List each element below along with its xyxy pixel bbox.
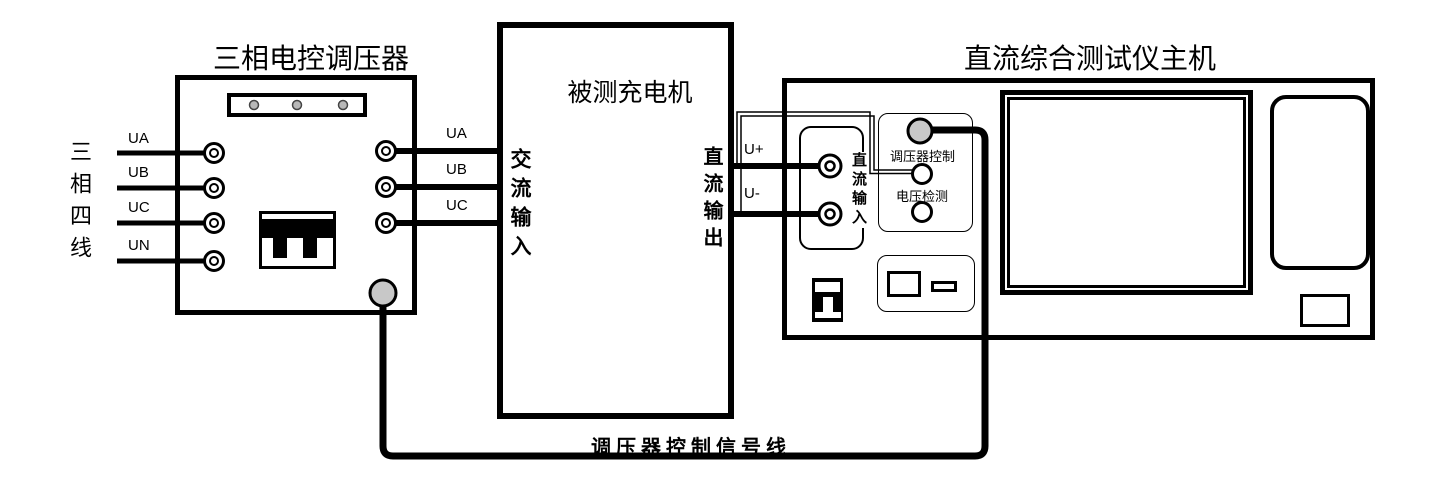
charger-title: 被测充电机 (530, 73, 730, 109)
tester-button-panel (877, 255, 975, 312)
breaker-toggle-right (303, 238, 317, 258)
tester-side-panel (1270, 95, 1370, 270)
wire-label-ub-out: UB (446, 161, 467, 178)
square-button (887, 271, 921, 297)
tester-small-button (1300, 294, 1350, 327)
wire-label-ub-in: UB (128, 164, 149, 181)
ac-input-label: 交流输入 (505, 148, 535, 264)
regulator-control-label: 调压器控制 (890, 146, 955, 165)
tester-screen-inner (1007, 97, 1246, 288)
tester-screen (1000, 90, 1253, 295)
small-indicator (931, 281, 957, 292)
wire-label-uc-out: UC (446, 197, 468, 214)
control-signal-label: 调压器控制信号线 (586, 431, 796, 460)
wire-label-un-in: UN (128, 237, 150, 254)
regulator-title: 三相电控调压器 (171, 37, 451, 77)
wire-label-ua-out: UA (446, 125, 467, 142)
breaker-icon (259, 211, 336, 269)
u-minus-label: U- (744, 185, 760, 202)
wire-label-ua-in: UA (128, 130, 149, 147)
wire-label-uc-in: UC (128, 199, 150, 216)
breaker-band (262, 219, 333, 238)
voltage-detect-label: 电压检测 (896, 186, 948, 205)
breaker-toggle-left (273, 238, 287, 258)
power-switch-icon (812, 278, 843, 322)
tester-title: 直流综合测试仪主机 (940, 37, 1240, 77)
phase-label: 三相四线 (63, 140, 95, 268)
dc-output-label: 直流输出 (697, 146, 726, 254)
tester-control-panel (878, 113, 973, 232)
dc-input-label: 直流输入 (848, 152, 869, 228)
regulator-indicator-strip (227, 93, 367, 117)
u-plus-label: U+ (744, 141, 764, 158)
wiring-diagram: 三相电控调压器 被测充电机 直流综合测试仪主机 三相四线 UA UB UC UN… (0, 0, 1429, 477)
